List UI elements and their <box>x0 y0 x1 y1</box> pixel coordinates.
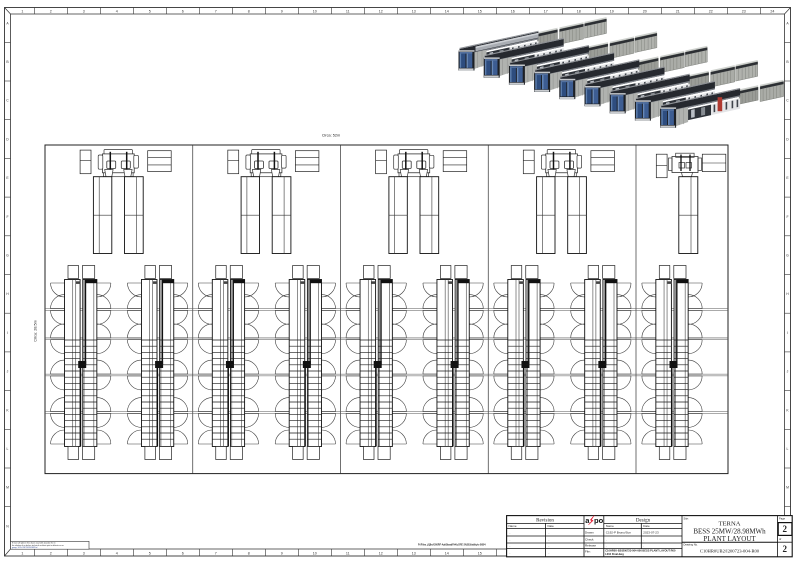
svg-text:Release: Release <box>585 544 596 548</box>
svg-text:6: 6 <box>182 551 184 555</box>
svg-text:11: 11 <box>346 551 350 555</box>
svg-text:C192-P Bruno/Sun: C192-P Bruno/Sun <box>606 531 631 535</box>
svg-text:.: . <box>549 538 550 542</box>
svg-text:1: 1 <box>21 9 23 13</box>
svg-text:M: M <box>786 486 789 490</box>
svg-text:I: I <box>7 331 8 335</box>
svg-text:1: 1 <box>21 551 23 555</box>
svg-text:.: . <box>510 551 511 555</box>
svg-text:.: . <box>510 544 511 548</box>
svg-text:12: 12 <box>379 551 383 555</box>
svg-text:Site:: Site: <box>684 516 689 520</box>
svg-text:J: J <box>787 370 789 374</box>
svg-text:14: 14 <box>445 9 449 13</box>
svg-text:po: po <box>594 516 604 525</box>
svg-text:Page: Page <box>779 516 786 520</box>
svg-text:9: 9 <box>281 551 283 555</box>
svg-text:Name: Name <box>606 524 614 528</box>
svg-text:3: 3 <box>83 9 85 13</box>
svg-text:18: 18 <box>577 9 581 13</box>
svg-text:C10HR0UB2/I200723-004-R00: C10HR0UB2/I200723-004-R00 <box>700 548 760 553</box>
svg-text:13: 13 <box>412 551 416 555</box>
svg-text:G: G <box>6 253 9 257</box>
svg-text:11: 11 <box>346 9 350 13</box>
svg-text:5: 5 <box>149 551 151 555</box>
svg-text:7: 7 <box>215 551 217 555</box>
svg-text:M: M <box>6 486 9 490</box>
svg-text:.: . <box>606 544 607 548</box>
svg-text:F: F <box>786 215 788 219</box>
svg-text:24: 24 <box>770 9 774 13</box>
svg-text:23: 23 <box>742 9 746 13</box>
svg-text:group, S.23+208' 2019/03/02.fo: group, S.23+208' 2019/03/02.fo/ <box>12 547 38 549</box>
svg-text:4: 4 <box>116 551 118 555</box>
svg-text:Drawing No.: Drawing No. <box>684 542 699 546</box>
svg-text:17: 17 <box>544 9 548 13</box>
svg-text:22: 22 <box>709 9 713 13</box>
svg-text:21: 21 <box>676 9 680 13</box>
svg-text:7: 7 <box>215 9 217 13</box>
svg-text:.: . <box>643 544 644 548</box>
svg-text:TERNA: TERNA <box>719 520 741 527</box>
svg-text:4: 4 <box>116 9 118 13</box>
svg-text:G: G <box>786 253 789 257</box>
svg-text:.: . <box>510 531 511 535</box>
svg-text:16: 16 <box>511 9 515 13</box>
svg-text:6: 6 <box>182 9 184 13</box>
svg-text:.: . <box>510 538 511 542</box>
svg-text:.: . <box>643 538 644 542</box>
svg-text:Date: Date <box>548 524 555 528</box>
svg-text:14: 14 <box>445 551 449 555</box>
svg-text:8: 8 <box>248 551 250 555</box>
svg-text:L: L <box>7 447 9 451</box>
svg-text:Name: Name <box>509 524 517 528</box>
svg-text:13: 13 <box>412 9 416 13</box>
svg-text:F: F <box>6 215 8 219</box>
svg-text:20: 20 <box>643 9 647 13</box>
svg-text:P:\Files_jQ8sA200RF-AaliSteadF: P:\Files_jQ8sA200RF-AaliSteadFi#0c07IE-2… <box>418 544 486 547</box>
svg-text:Revision: Revision <box>536 519 554 524</box>
svg-text:10: 10 <box>313 551 317 555</box>
svg-text:J: J <box>7 370 9 374</box>
svg-text:19: 19 <box>610 9 614 13</box>
svg-text:I: I <box>787 331 788 335</box>
svg-text:15: 15 <box>478 9 482 13</box>
svg-text:File:: File: <box>585 550 591 554</box>
svg-text:Drawn: Drawn <box>585 531 594 535</box>
svg-text:Circa: 52m: Circa: 52m <box>322 134 340 138</box>
svg-text:L004 Final.dwg: L004 Final.dwg <box>605 552 624 556</box>
svg-text:Circa: 28.5m: Circa: 28.5m <box>34 320 38 342</box>
svg-text:of: of <box>779 537 781 541</box>
svg-text:Design: Design <box>636 519 651 524</box>
svg-text:9: 9 <box>281 9 283 13</box>
svg-text:15: 15 <box>478 551 482 555</box>
svg-text:2: 2 <box>783 544 788 554</box>
svg-text:2: 2 <box>50 9 52 13</box>
svg-text:2: 2 <box>783 524 788 534</box>
svg-text:.: . <box>549 551 550 555</box>
svg-text:3: 3 <box>83 551 85 555</box>
svg-text:5: 5 <box>149 9 151 13</box>
svg-text:L: L <box>787 447 789 451</box>
svg-text:.: . <box>549 544 550 548</box>
svg-text:Check: Check <box>585 538 594 542</box>
svg-text:.: . <box>549 531 550 535</box>
svg-text:2: 2 <box>50 551 52 555</box>
svg-text:Date: Date <box>643 524 650 528</box>
svg-text:8: 8 <box>248 9 250 13</box>
svg-text:.: . <box>606 538 607 542</box>
svg-text:2023-07-23: 2023-07-23 <box>643 531 659 535</box>
svg-text:12: 12 <box>379 9 383 13</box>
svg-text:C10HR0U-B2/I200723-004-006 BES: C10HR0U-B2/I200723-004-006 BESS PLANT LA… <box>605 549 676 553</box>
svg-text:10: 10 <box>313 9 317 13</box>
